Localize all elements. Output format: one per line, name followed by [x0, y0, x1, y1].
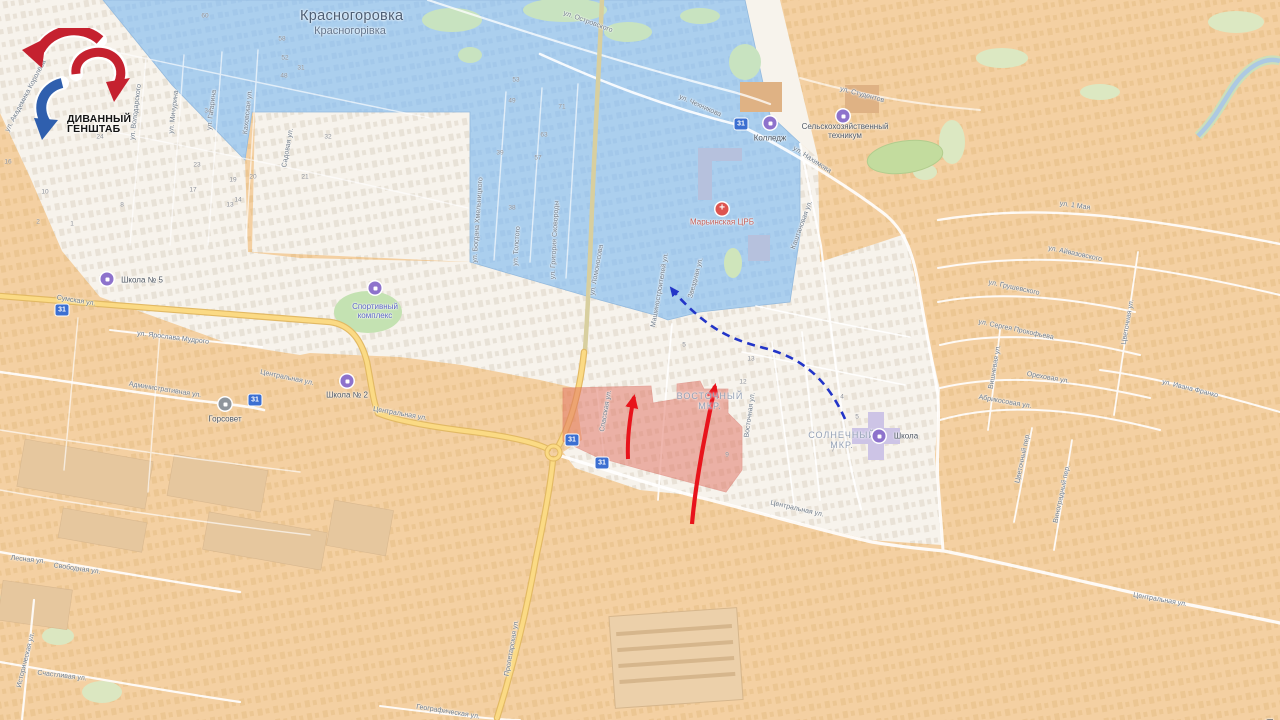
house-number: 58: [278, 36, 285, 43]
road-shield: 31: [56, 305, 69, 316]
street-label: Вишневая ул.: [988, 344, 1003, 389]
city-name-ru: Красногоровка: [300, 8, 400, 24]
house-number: 14: [234, 197, 241, 204]
street-label: Восточная ул.: [743, 392, 756, 438]
street-label: ул. Айвазовского: [1047, 245, 1102, 263]
street-label: Цветочная ул.: [1121, 299, 1136, 345]
road-shield: 31: [249, 395, 262, 406]
poi-label: Колледж: [754, 135, 787, 144]
house-number: 57: [534, 155, 541, 162]
street-label: Садовая ул.: [281, 128, 295, 168]
label-layer: Красногоровка Красногорівка ул. Островск…: [0, 0, 1280, 720]
street-label: Центральная ул.: [770, 499, 825, 518]
street-label: ул. Ломоносова: [589, 244, 605, 296]
house-number: 63: [540, 132, 547, 139]
street-label: ул. Мичурина: [168, 90, 180, 134]
city-name-uk: Красногорівка: [300, 25, 400, 37]
house-number: 32: [324, 134, 331, 141]
street-label: Центральная ул.: [373, 406, 428, 422]
house-number: 52: [281, 55, 288, 62]
street-label: Каховская ул.: [242, 89, 254, 134]
street-label: Ореховая ул.: [1026, 371, 1070, 385]
street-label: Административная ул.: [128, 381, 201, 399]
house-number: 17: [189, 187, 196, 194]
street-label: Цветочный пер.: [1014, 432, 1032, 484]
house-number: 13: [747, 356, 754, 363]
district-label: ВОСТОЧНЫЙ МКР.: [677, 391, 744, 411]
street-label: ул. Толстого: [512, 226, 522, 266]
street-label: ул. 1 Мая: [1059, 200, 1090, 211]
poi-icon-hospital: [716, 203, 729, 216]
house-number: 31: [297, 65, 304, 72]
logo-text: ДИВАННЫЙ ГЕНШТАБ: [67, 114, 131, 134]
poi-icon-school: [101, 273, 114, 286]
poi-label: Сельскохозяйственный техникум: [797, 123, 893, 141]
house-number: 19: [229, 177, 236, 184]
poi-icon-school: [341, 375, 354, 388]
street-label: Абрикосовая ул.: [978, 394, 1032, 410]
road-shield: 31: [735, 119, 748, 130]
house-number: 4: [840, 394, 844, 401]
street-label: Пролетарская ул.: [504, 619, 521, 676]
road-shield: 31: [566, 435, 579, 446]
house-number: 5: [682, 342, 686, 349]
house-number: 2: [36, 219, 40, 226]
street-label: ул. Островского: [562, 10, 613, 34]
street-label: Каштановая ул.: [790, 200, 814, 250]
house-number: 39: [496, 150, 503, 157]
street-label: Счастливая ул.: [37, 669, 87, 682]
poi-icon-sport: [369, 282, 382, 295]
street-label: ул. Сергея Прокофьева: [978, 319, 1055, 342]
street-label: Географическая ул.: [416, 704, 481, 720]
poi-label: Горсовет: [208, 416, 241, 425]
poi-label: Марьинская ЦРБ: [690, 219, 754, 228]
street-label: Свободная ул.: [53, 562, 101, 576]
street-label: ул. Грушевского: [988, 279, 1040, 297]
house-number: 12: [739, 379, 746, 386]
house-number: 5: [855, 414, 859, 421]
road-shield: 31: [596, 458, 609, 469]
street-label: Центральная ул.: [1133, 592, 1188, 608]
poi-label: Школа № 5: [121, 277, 163, 286]
house-number: 16: [4, 159, 11, 166]
house-number: 71: [558, 104, 565, 111]
street-label: Центральная ул.: [260, 369, 315, 387]
house-number: 53: [512, 77, 519, 84]
house-number: 10: [41, 189, 48, 196]
poi-icon-school: [873, 430, 886, 443]
poi-icon-college: [837, 110, 850, 123]
house-number: 1: [70, 221, 74, 228]
street-label: Историческая ул.: [16, 632, 36, 689]
street-label: ул. Богдана Хмельницкого: [472, 177, 485, 263]
street-label: ул. Ивана Франко: [1161, 379, 1219, 400]
house-number: 49: [508, 98, 515, 105]
poi-label: Школа: [894, 433, 918, 442]
house-number: 34: [204, 108, 211, 115]
poi-icon-civic: [219, 398, 232, 411]
street-label: ул. Григория Сковороды: [549, 201, 560, 280]
house-number: 23: [193, 162, 200, 169]
district-label: СОЛНЕЧНЫЙ МКР.: [808, 430, 876, 450]
poi-icon-college: [764, 117, 777, 130]
divgen-logo: ДИВАННЫЙ ГЕНШТАБ: [12, 28, 144, 146]
city-label: Красногоровка Красногорівка: [300, 8, 400, 37]
street-label: Спасская ул.: [599, 390, 613, 433]
street-label: ул. Чехникова: [678, 94, 722, 119]
house-number: 60: [201, 13, 208, 20]
house-number: 9: [725, 452, 729, 459]
street-label: ул. Студентов: [839, 86, 885, 105]
street-label: ул. Нахимова: [792, 145, 833, 175]
poi-label: Школа № 2: [326, 392, 368, 401]
street-label: Звездная ул.: [687, 257, 705, 299]
house-number: 8: [120, 202, 124, 209]
logo-line2: ГЕНШТАБ: [67, 124, 131, 134]
house-number: 13: [226, 202, 233, 209]
street-label: ул. Ярослава Мудрого: [137, 330, 210, 346]
street-label: Машиностроителей ул.: [650, 252, 670, 328]
house-number: 48: [280, 73, 287, 80]
street-label: Виноградный пер.: [1052, 464, 1071, 523]
house-number: 21: [301, 174, 308, 181]
house-number: 20: [249, 174, 256, 181]
poi-label: Спортивный комплекс: [344, 303, 406, 321]
street-label: Лесная ул.: [10, 555, 45, 566]
house-number: 38: [508, 205, 515, 212]
situation-map: Красногоровка Красногорівка ул. Островск…: [0, 0, 1280, 720]
